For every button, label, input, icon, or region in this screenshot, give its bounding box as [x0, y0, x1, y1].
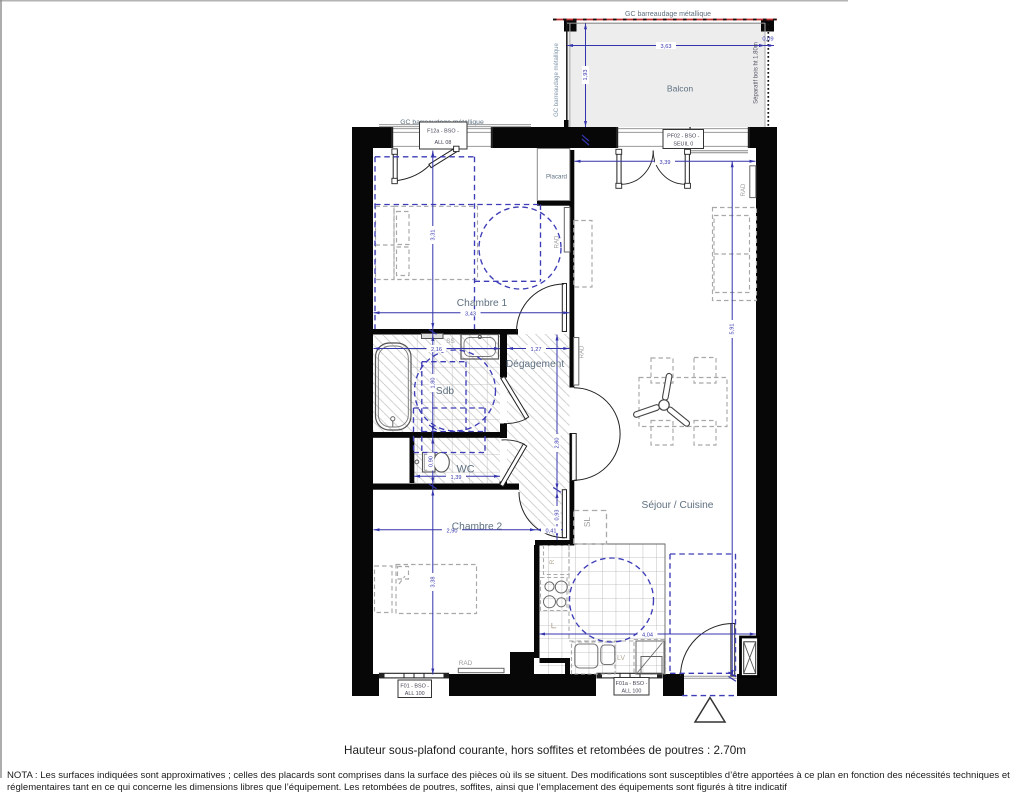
svg-text:0,93: 0,93: [554, 510, 560, 521]
svg-text:Dégagement: Dégagement: [506, 359, 565, 370]
svg-text:ALL 100: ALL 100: [405, 691, 425, 697]
svg-text:Séjour / Cuisine: Séjour / Cuisine: [642, 500, 714, 511]
svg-text:WC: WC: [457, 464, 475, 476]
svg-text:F12a - BSO -: F12a - BSO -: [427, 129, 459, 135]
svg-text:RAD: RAD: [555, 235, 561, 248]
svg-text:PF02 - BSO -: PF02 - BSO -: [667, 133, 700, 139]
svg-text:3,43: 3,43: [465, 311, 476, 317]
svg-text:Balcon: Balcon: [667, 84, 693, 94]
svg-text:GC barreaudage métallique: GC barreaudage métallique: [554, 42, 560, 116]
svg-text:Sdb: Sdb: [436, 386, 454, 397]
svg-text:3,31: 3,31: [430, 230, 436, 241]
svg-text:5,91: 5,91: [730, 324, 736, 335]
svg-text:SEUIL 0: SEUIL 0: [673, 142, 693, 148]
svg-text:R: R: [549, 559, 556, 564]
svg-text:ALL 08: ALL 08: [435, 140, 452, 146]
svg-text:Séparatif bois ht 1.80m: Séparatif bois ht 1.80m: [754, 42, 760, 104]
svg-text:RAD: RAD: [741, 183, 747, 196]
svg-text:0,09: 0,09: [762, 37, 773, 43]
svg-text:Placard: Placard: [546, 174, 568, 181]
svg-text:Chambre 1: Chambre 1: [457, 298, 508, 309]
svg-text:2,16: 2,16: [431, 347, 442, 353]
svg-text:3,63: 3,63: [661, 44, 672, 50]
svg-text:F01 - BSO -: F01 - BSO -: [400, 683, 429, 689]
svg-text:1,39: 1,39: [451, 475, 462, 481]
svg-text:Hauteur sous-plafond courante,: Hauteur sous-plafond courante, hors soff…: [344, 744, 746, 757]
svg-text:réglementaires tant en ce qui: réglementaires tant en ce qui concerne l…: [7, 782, 787, 793]
svg-text:2,80: 2,80: [554, 438, 560, 449]
svg-text:3,38: 3,38: [430, 577, 436, 588]
svg-text:RAD: RAD: [459, 660, 473, 667]
svg-text:GC barreaudage métallique: GC barreaudage métallique: [625, 11, 711, 18]
svg-text:SL: SL: [582, 517, 592, 528]
svg-text:LV: LV: [617, 655, 625, 662]
svg-text:3,39: 3,39: [660, 160, 671, 166]
svg-text:0,90: 0,90: [428, 456, 434, 467]
svg-text:SS: SS: [446, 338, 455, 345]
svg-text:Chambre 2: Chambre 2: [452, 522, 503, 533]
svg-text:ALL 100: ALL 100: [622, 689, 642, 695]
svg-text:NOTA : Les surfaces indiquées: NOTA : Les surfaces indiquées sont appro…: [7, 770, 1010, 781]
svg-text:4,04: 4,04: [642, 633, 653, 639]
svg-text:1,93: 1,93: [583, 70, 589, 81]
svg-text:0,41: 0,41: [546, 528, 557, 534]
svg-text:1,27: 1,27: [531, 347, 542, 353]
svg-text:F01a - BSO -: F01a - BSO -: [616, 681, 648, 687]
svg-text:RAD: RAD: [580, 345, 586, 358]
